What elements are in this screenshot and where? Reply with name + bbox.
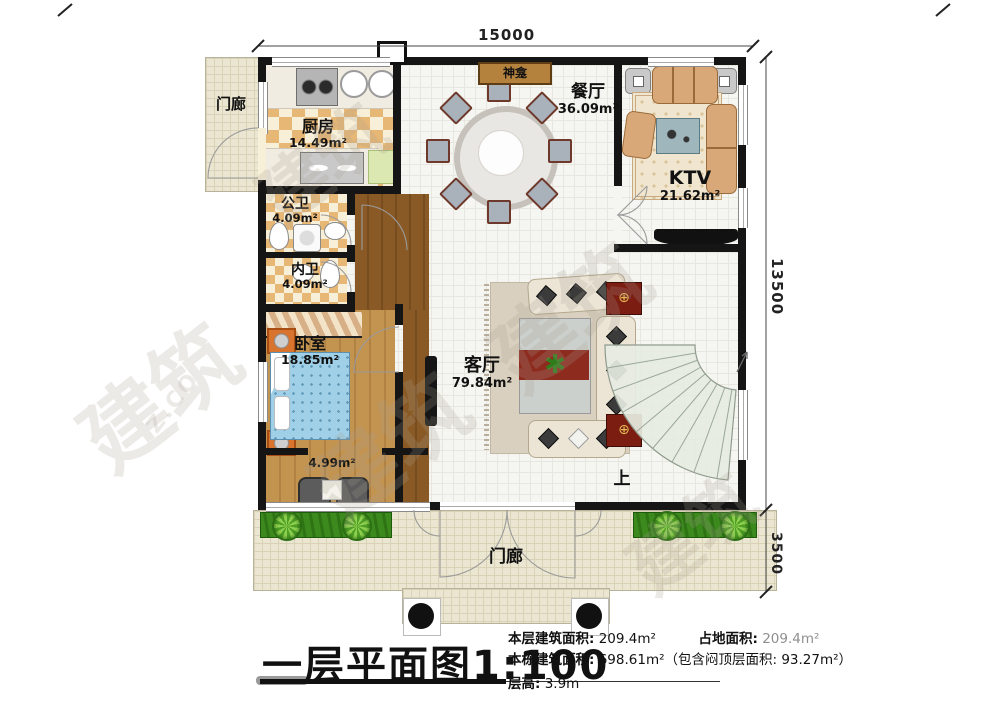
speaker-icon [625,68,651,94]
ktv-armchair [621,110,657,160]
tv-icon [425,356,437,426]
land-area-value: 209.4m² [762,631,819,647]
sofa-right [596,316,636,426]
watermark-text-latin: Z.CO [142,367,206,438]
wall-bath-right-b [347,245,355,262]
shrub-icon [652,511,682,541]
wall-bath-divider [258,252,353,258]
floor-plan-canvas: 神龛 ✱ ⊕ ⊕ [0,0,1000,706]
cutting-board-icon [368,150,395,184]
stats-line-3: 层高: 3.9m [508,674,978,695]
dimension-right-upper: 13500 [768,258,786,315]
window [648,57,714,67]
wall-bedroom-right-a [395,304,403,325]
dimension-top: 15000 [478,26,535,44]
dining-chair-icon [548,139,572,163]
room-label-porch-left: 门廊 [204,96,258,113]
dimension-right-lower: 3500 [768,532,784,575]
total-area-label: 本栋建筑面积: [508,652,594,668]
shrine-cabinet: 神龛 [478,62,552,85]
ktv-door-gap [614,186,622,244]
entry-door-gap [440,502,575,510]
window [738,85,748,145]
height-label: 层高: [508,676,540,692]
column-icon [576,603,602,629]
stove-icon [296,68,338,106]
room-label-bedroom: 卧室 18.85m² [272,335,348,368]
wall-kitchen-bottom [258,186,401,194]
room-label-porch-bottom: 门廊 [478,548,534,568]
wall-kitchen-right [393,65,401,186]
washer-icon [293,224,321,252]
ktv-sofa-top [652,66,718,104]
room-label-dining: 餐厅 36.09m² [548,83,628,117]
wall-balcony-left [266,448,308,455]
shrub-icon [272,511,302,541]
accent-table-icon: ⊕ [606,282,642,315]
floor-area-label: 本层建筑面积: [508,631,594,647]
window [258,362,268,422]
wall-bedroom-right-b [395,372,403,502]
balcony-glazing [266,502,430,512]
stats-block: 本层建筑面积: 209.4m² 占地面积: 209.4m² 本栋建筑面积: 69… [508,629,978,695]
porch-door-gap [258,128,266,180]
plant-icon: ✱ [540,350,570,380]
shrine-label: 神龛 [503,66,527,80]
window [272,57,390,67]
floor-area-value: 209.4m² [599,631,656,647]
dining-chair-icon [426,139,450,163]
toilet-icon [269,222,289,250]
title-underline [260,679,506,684]
shrub-icon [720,511,750,541]
wall-balcony-right [382,448,428,455]
watermark-text: 建筑 [50,290,262,494]
dining-chair-icon [487,200,511,224]
land-area-label: 占地面积: [699,631,758,647]
sink-bowl-icon [368,70,396,98]
pillow-icon [274,396,290,430]
wall-ktv-bottom [614,244,746,252]
stats-line-1: 本层建筑面积: 209.4m² 占地面积: 209.4m² [508,629,978,650]
column-icon [408,603,434,629]
stair-up-label: 上 [610,470,634,490]
hallway-floor [355,194,429,310]
room-label-living: 客厅 79.84m² [442,356,522,392]
sink-bowl-icon [340,70,368,98]
stats-line-2: 本栋建筑面积: 698.61m²（包含闷顶层面积: 93.27m²） [508,650,978,671]
accent-table-icon: ⊕ [606,414,642,447]
window [738,390,748,460]
room-label-ktv: KTV 21.62m² [650,168,730,205]
shrub-icon [342,511,372,541]
double-sink-icon [300,152,364,184]
window [738,188,748,228]
window [258,82,268,134]
room-label-balcony-area: 4.99m² [300,457,364,471]
room-label-kitchen: 厨房 14.49m² [278,118,358,151]
balcony-table-icon [322,480,342,500]
ktv-table [656,118,700,154]
wall-ktv-left [614,57,622,186]
total-area-value: 698.61m²（包含闷顶层面积: 93.27m²） [599,652,852,668]
height-value: 3.9m [545,676,580,692]
room-label-public-bath: 公卫 4.09m² [262,196,328,225]
dining-table-center [478,130,524,176]
room-label-private-bath: 内卫 4.09m² [272,262,338,291]
wall-bedroom-top [258,304,355,312]
left-porch-floor [205,57,260,192]
wall-bath-right-a [347,194,355,215]
